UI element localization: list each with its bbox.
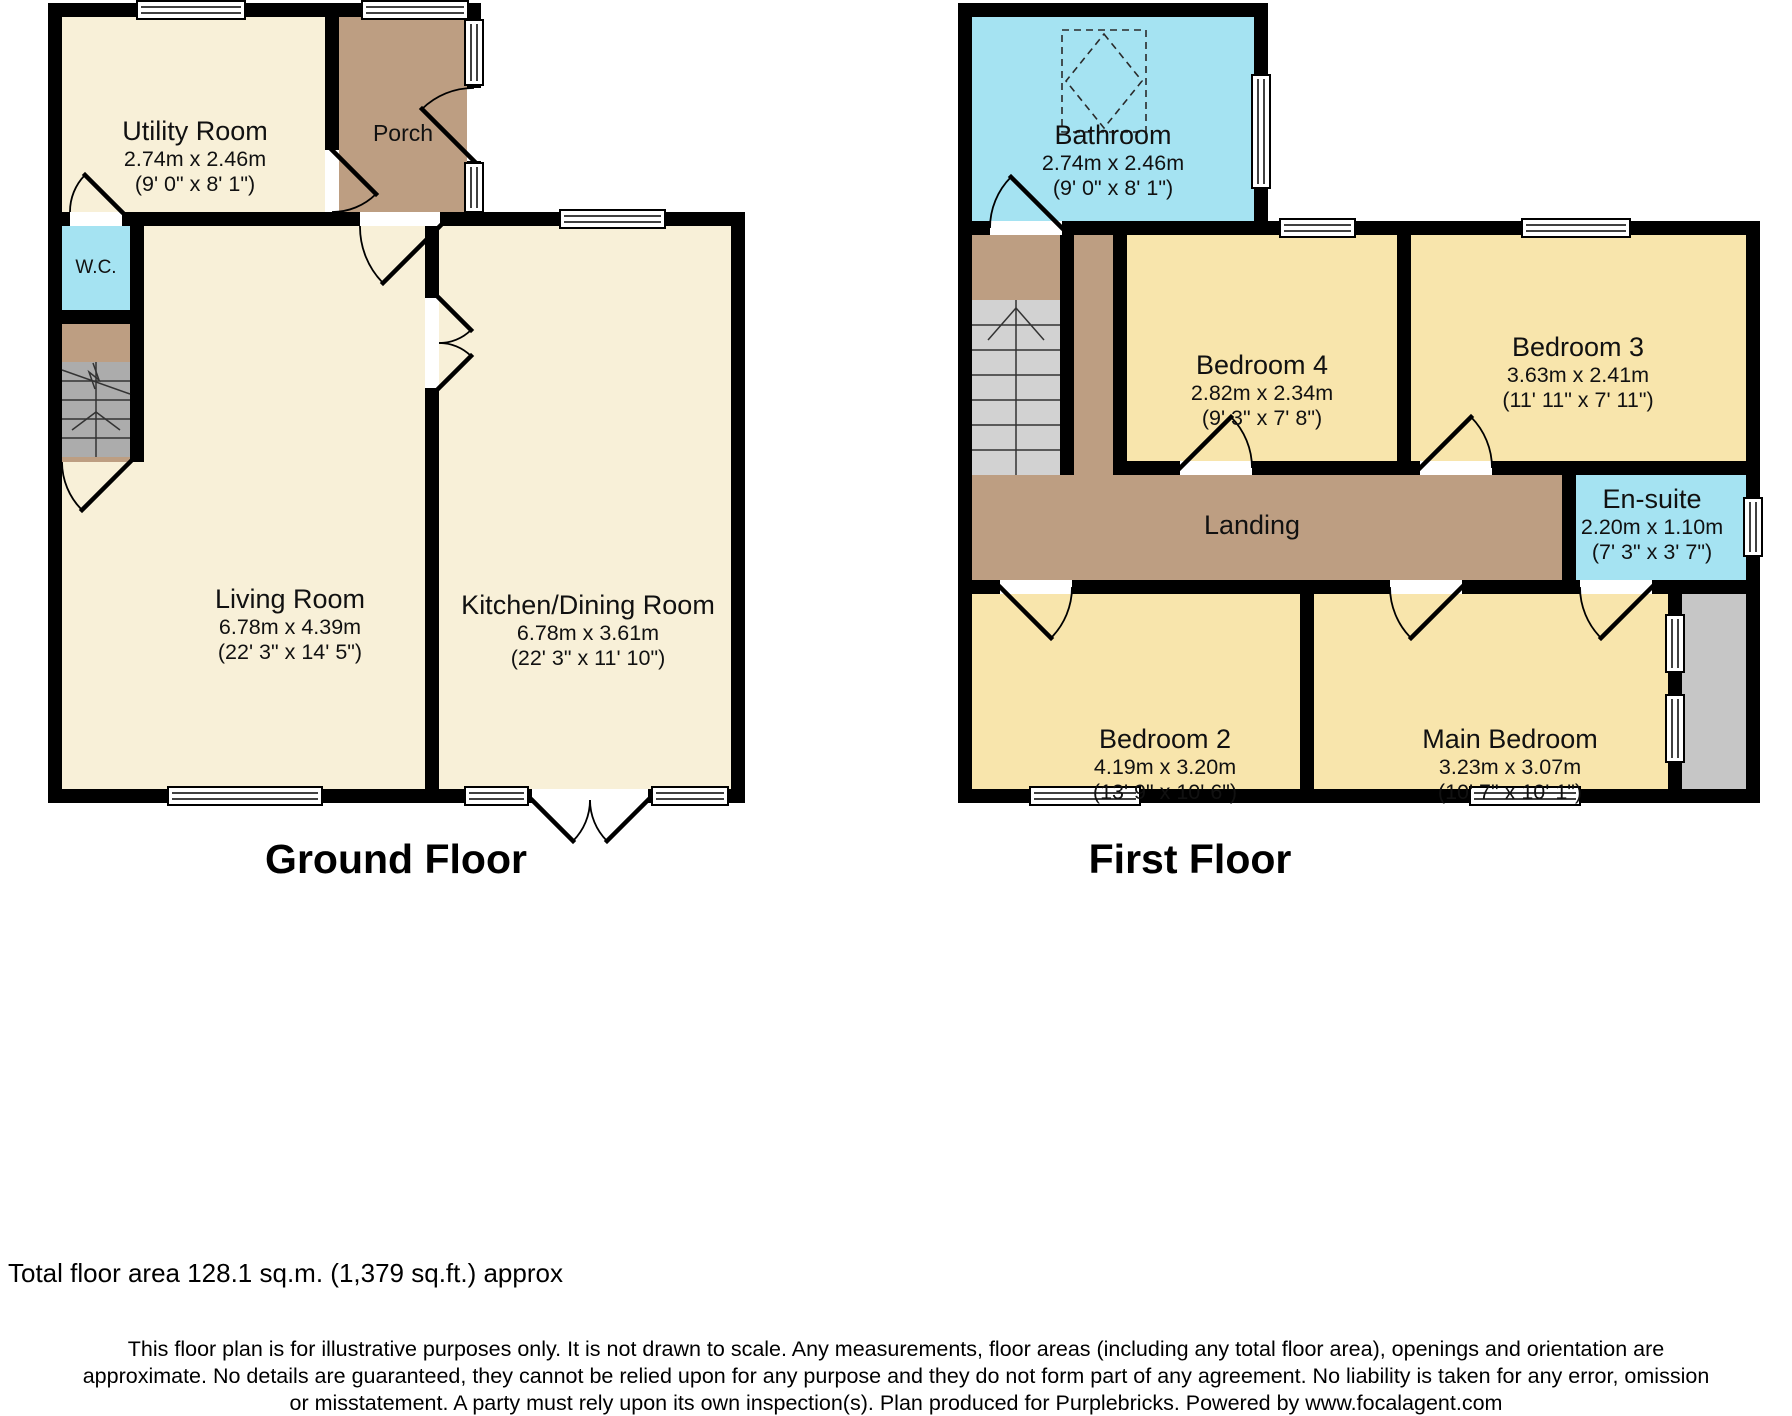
room-label-main-bedroom: Main Bedroom 3.23m x 3.07m (10' 7" x 10'…	[1422, 724, 1598, 805]
room-name: Bedroom 2	[1093, 724, 1237, 755]
window	[1252, 75, 1270, 188]
room-dims-imperial: (22' 3" x 11' 10")	[461, 646, 715, 671]
room-label-kitchen-dining: Kitchen/Dining Room 6.78m x 3.61m (22' 3…	[461, 590, 715, 671]
room-dims-imperial: (22' 3" x 14' 5")	[215, 640, 365, 665]
window	[465, 163, 483, 212]
room-dims-metric: 2.20m x 1.10m	[1581, 515, 1723, 540]
room-label-bathroom: Bathroom 2.74m x 2.46m (9' 0" x 8' 1")	[1042, 120, 1184, 201]
room-label-wc: W.C.	[75, 257, 116, 279]
window	[465, 787, 528, 805]
room-dims-imperial: (13' 9" x 10' 6")	[1093, 780, 1237, 805]
room-label-utility: Utility Room 2.74m x 2.46m (9' 0" x 8' 1…	[122, 116, 268, 197]
room-label-bedroom-3: Bedroom 3 3.63m x 2.41m (11' 11" x 7' 11…	[1502, 332, 1653, 413]
window	[1280, 219, 1355, 237]
room-dims-imperial: (9' 0" x 8' 1")	[1042, 176, 1184, 201]
window	[1666, 695, 1684, 762]
total-floor-area: Total floor area 128.1 sq.m. (1,379 sq.f…	[8, 1258, 563, 1289]
room-label-ensuite: En-suite 2.20m x 1.10m (7' 3" x 3' 7")	[1581, 484, 1723, 565]
window	[1522, 219, 1630, 237]
room-name: Main Bedroom	[1422, 724, 1598, 755]
room-label-living-room: Living Room 6.78m x 4.39m (22' 3" x 14' …	[215, 584, 365, 665]
room-dims-imperial: (11' 11" x 7' 11")	[1502, 388, 1653, 413]
disclaimer-text: This floor plan is for illustrative purp…	[0, 1336, 1792, 1416]
room-name: Living Room	[215, 584, 365, 615]
room-dims-metric: 2.82m x 2.34m	[1191, 381, 1333, 406]
room-dims-metric: 3.63m x 2.41m	[1502, 363, 1653, 388]
room-name: W.C.	[75, 257, 116, 279]
room-label-bedroom-4: Bedroom 4 2.82m x 2.34m (9' 3" x 7' 8")	[1191, 350, 1333, 431]
room-label-porch: Porch	[373, 120, 433, 147]
window	[1744, 498, 1762, 556]
disclaimer-line: This floor plan is for illustrative purp…	[0, 1336, 1792, 1363]
window	[362, 1, 468, 19]
window	[652, 787, 728, 805]
room-name: Utility Room	[122, 116, 268, 147]
window	[137, 1, 245, 19]
window	[560, 210, 665, 228]
first-floor-title: First Floor	[1089, 836, 1292, 883]
room-name: Kitchen/Dining Room	[461, 590, 715, 621]
french-door-swing	[532, 800, 648, 841]
room-dims-imperial: (9' 3" x 7' 8")	[1191, 406, 1333, 431]
disclaimer-line: approximate. No details are guaranteed, …	[0, 1363, 1792, 1390]
disclaimer-line: or misstatement. A party must rely upon …	[0, 1390, 1792, 1416]
ground-floor-title: Ground Floor	[265, 836, 527, 883]
room-dims-metric: 2.74m x 2.46m	[1042, 151, 1184, 176]
window	[168, 787, 322, 805]
room-dims-metric: 6.78m x 4.39m	[215, 615, 365, 640]
room-dims-metric: 3.23m x 3.07m	[1422, 755, 1598, 780]
room-dims-imperial: (7' 3" x 3' 7")	[1581, 540, 1723, 565]
room-name: Bedroom 3	[1502, 332, 1653, 363]
window	[1666, 615, 1684, 672]
room-name: Landing	[1204, 510, 1300, 541]
room-name: Bedroom 4	[1191, 350, 1333, 381]
floorplan-page: Utility Room 2.74m x 2.46m (9' 0" x 8' 1…	[0, 0, 1792, 1416]
room-name: Bathroom	[1042, 120, 1184, 151]
room-dims-metric: 6.78m x 3.61m	[461, 621, 715, 646]
window	[465, 20, 483, 85]
room-name: Porch	[373, 120, 433, 147]
room-label-landing: Landing	[1204, 510, 1300, 541]
room-dims-metric: 4.19m x 3.20m	[1093, 755, 1237, 780]
room-dims-imperial: (9' 0" x 8' 1")	[122, 172, 268, 197]
room-label-bedroom-2: Bedroom 2 4.19m x 3.20m (13' 9" x 10' 6"…	[1093, 724, 1237, 805]
room-name: En-suite	[1581, 484, 1723, 515]
room-dims-imperial: (10' 7" x 10' 1")	[1422, 780, 1598, 805]
room-dims-metric: 2.74m x 2.46m	[122, 147, 268, 172]
